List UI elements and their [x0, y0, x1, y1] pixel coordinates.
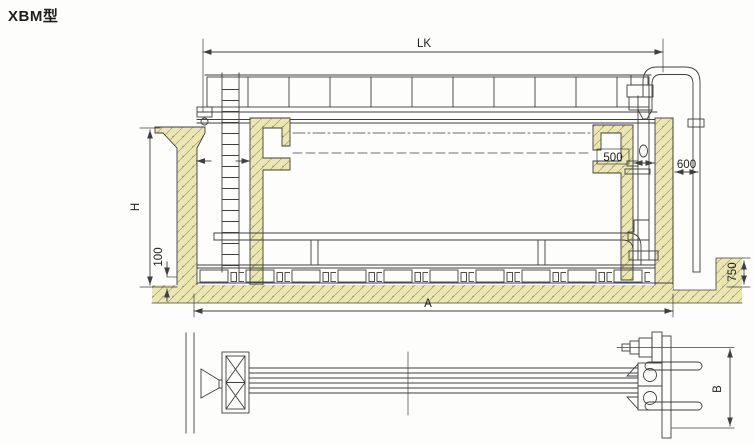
dim-label-h: H	[130, 203, 142, 211]
dim-label-b: B	[712, 385, 724, 393]
dim-b: B	[712, 349, 730, 426]
ladder	[222, 73, 239, 272]
water-level-lines	[293, 133, 590, 153]
dim-label-100: 100	[153, 247, 165, 266]
dim-label-600: 600	[677, 159, 696, 171]
drive-assembly	[617, 332, 734, 438]
walkway-bridge	[197, 75, 657, 123]
tank-floor	[197, 265, 673, 283]
plan-wall-lines	[186, 333, 194, 433]
dim-label-a: A	[424, 298, 432, 310]
dim-label-750: 750	[727, 262, 739, 281]
outlet-trough-wall	[593, 125, 633, 280]
feed-funnel	[201, 369, 219, 398]
dim-label-500: 500	[603, 152, 622, 164]
bridge-wheel	[197, 107, 212, 125]
right-wall	[655, 118, 673, 290]
technical-drawing: LK H 100 A	[0, 0, 755, 444]
section-view: LK H 100 A	[130, 38, 750, 317]
dim-label-lk: LK	[417, 38, 431, 50]
drawing-page: XBM型	[0, 0, 755, 444]
truss-box	[222, 352, 249, 413]
scraper-beam	[214, 233, 641, 265]
dim-600: 600	[675, 159, 698, 172]
scraper-rails	[249, 352, 638, 415]
plan-view: B	[186, 332, 734, 438]
inlet-trough-wall	[250, 118, 290, 285]
